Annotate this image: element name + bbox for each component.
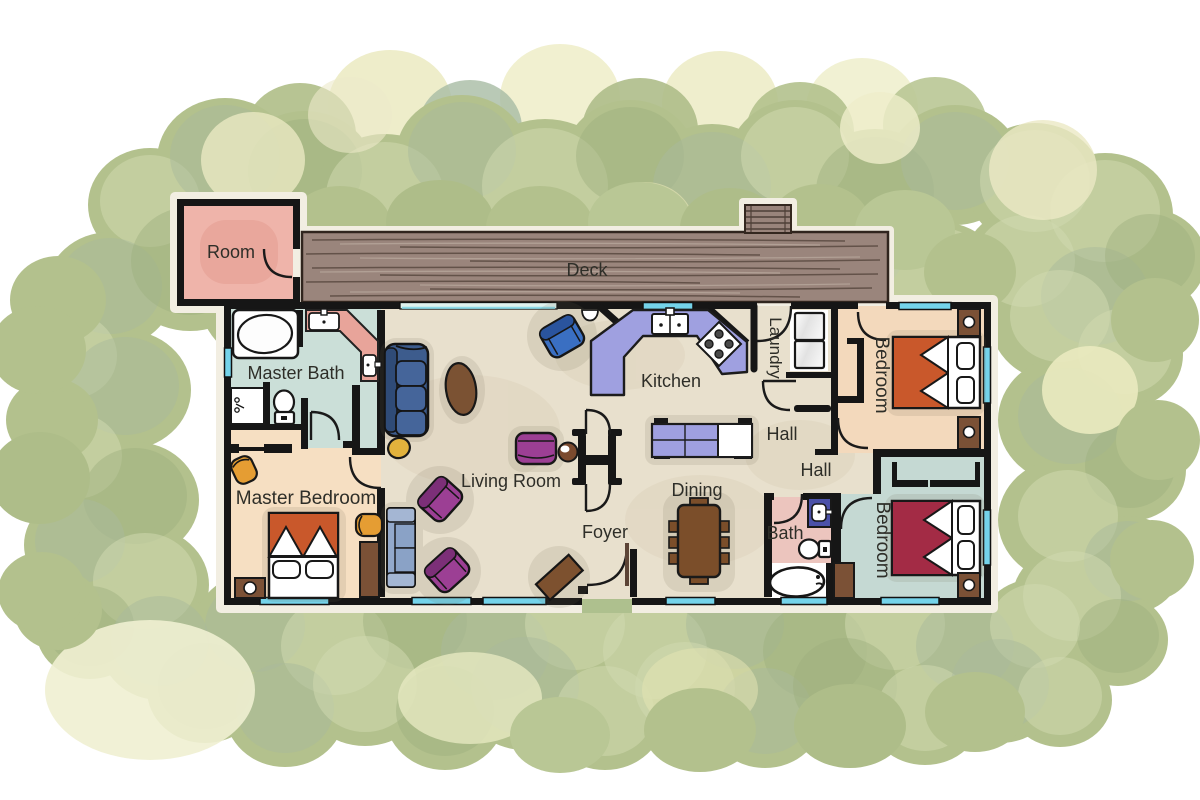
- svg-text:Hall: Hall: [800, 460, 831, 480]
- svg-text:Dining: Dining: [671, 480, 722, 500]
- svg-text:Hall: Hall: [766, 424, 797, 444]
- svg-text:Master Bedroom: Master Bedroom: [236, 488, 376, 509]
- svg-text:Deck: Deck: [566, 260, 608, 280]
- svg-text:Kitchen: Kitchen: [641, 371, 701, 391]
- svg-text:Bath: Bath: [766, 523, 803, 543]
- svg-text:Living Room: Living Room: [461, 471, 561, 491]
- svg-text:Room: Room: [207, 242, 255, 262]
- svg-text:Bedroom: Bedroom: [871, 336, 892, 413]
- svg-text:Master Bath: Master Bath: [247, 363, 344, 383]
- svg-text:Foyer: Foyer: [582, 522, 628, 542]
- svg-text:Laundry: Laundry: [766, 317, 785, 379]
- svg-text:Bedroom: Bedroom: [872, 501, 893, 578]
